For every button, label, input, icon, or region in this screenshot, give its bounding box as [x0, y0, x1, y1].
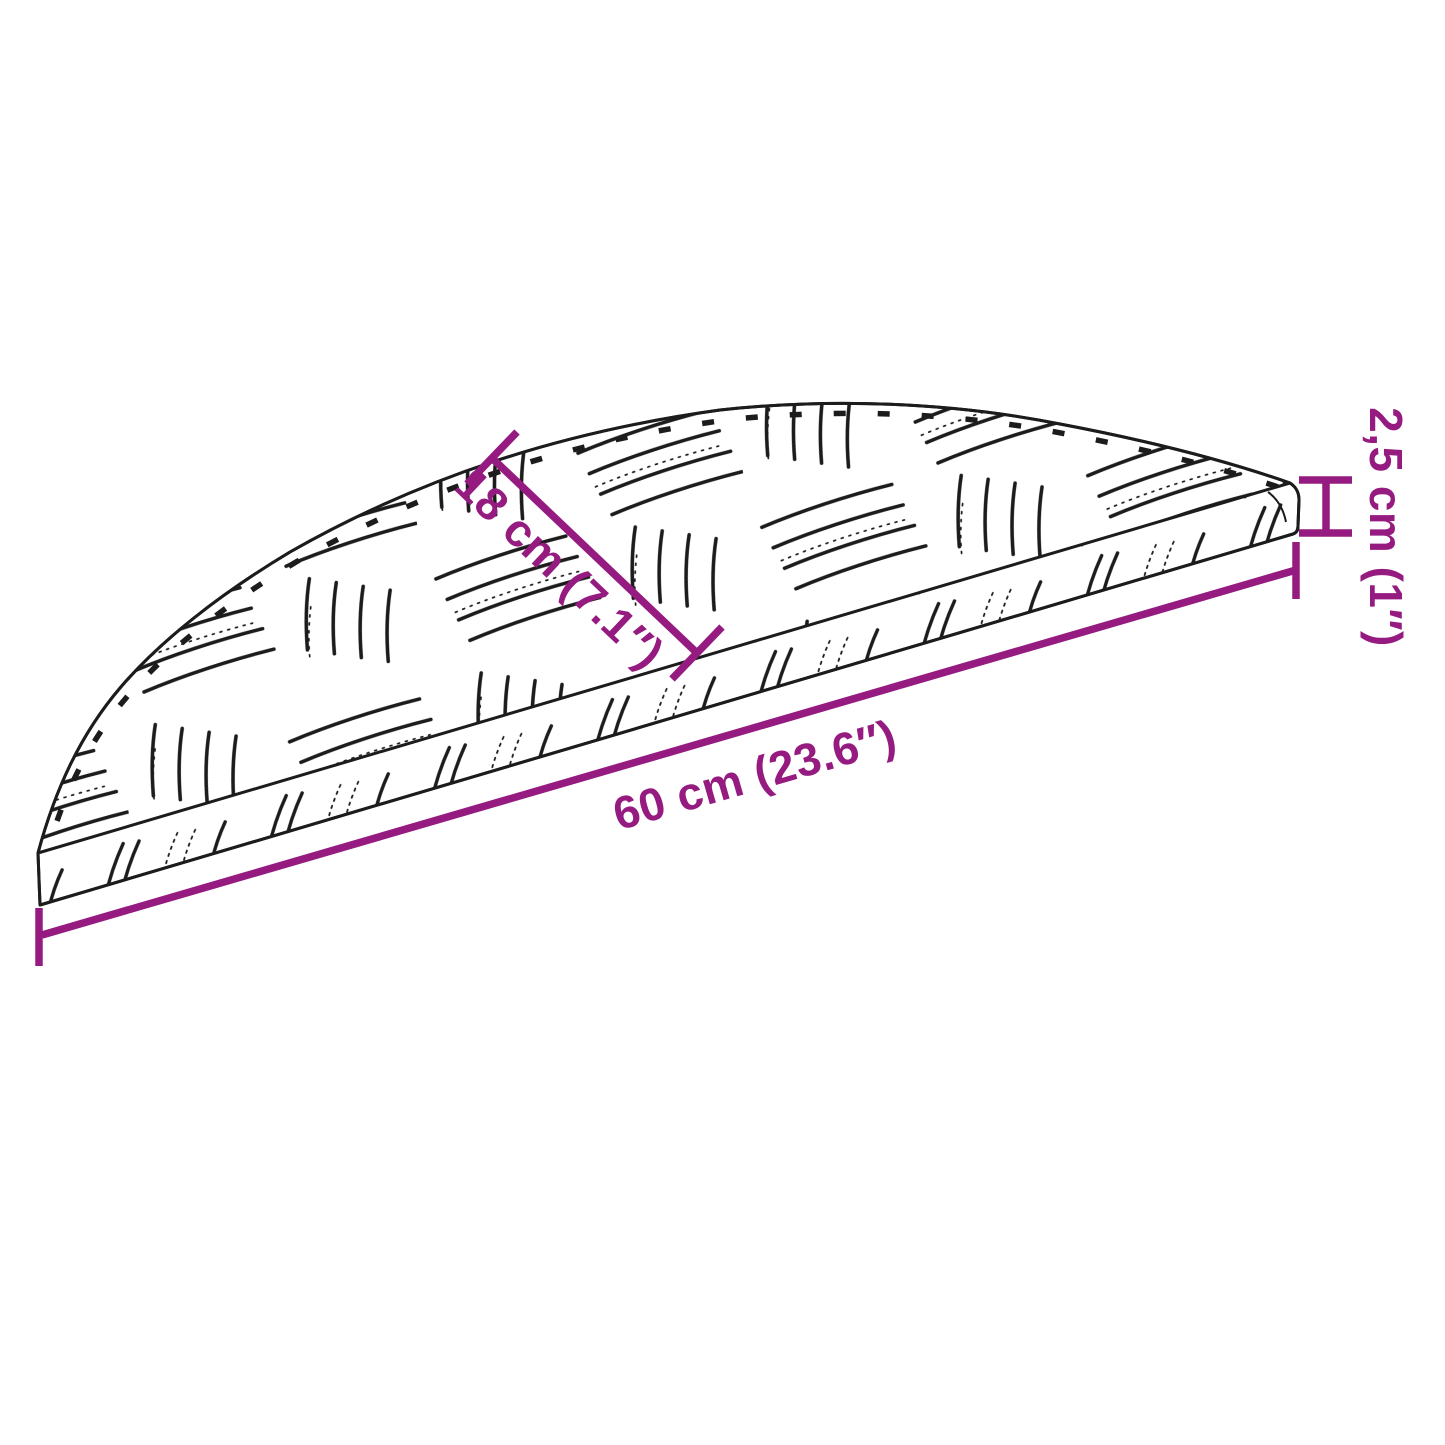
stair-tread-diagram-canvas: 60 cm (23.6″) 18 cm (7.1″) 2,5 cm (1″): [0, 0, 1445, 1445]
product-dimension-diagram: 60 cm (23.6″) 18 cm (7.1″) 2,5 cm (1″): [0, 0, 1445, 1445]
thickness-dimension-label: 2,5 cm (1″): [1360, 407, 1412, 647]
